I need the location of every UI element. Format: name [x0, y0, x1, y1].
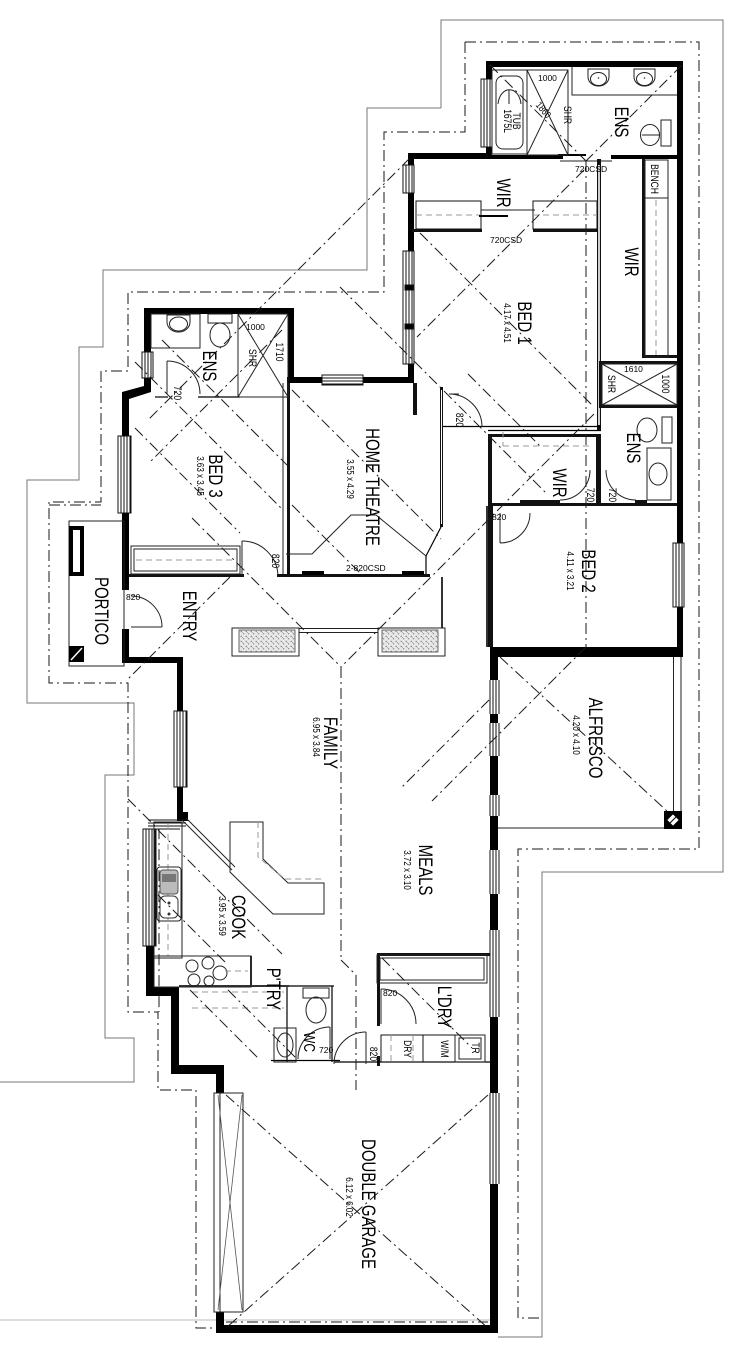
svg-text:820: 820: [453, 413, 465, 428]
svg-text:BED 3: BED 3: [205, 454, 227, 497]
svg-text:HOME THEATRE: HOME THEATRE: [362, 428, 384, 546]
svg-text:820: 820: [492, 512, 506, 522]
svg-text:820: 820: [367, 1047, 379, 1062]
svg-text:1710: 1710: [273, 343, 285, 362]
svg-text:4.11 x 3.21: 4.11 x 3.21: [565, 552, 576, 591]
svg-text:3.95 x 3.59: 3.95 x 3.59: [217, 896, 228, 936]
svg-text:3.63 x 3.45: 3.63 x 3.45: [195, 456, 206, 496]
svg-text:1000: 1000: [659, 375, 671, 394]
svg-text:6.95 x 3.84: 6.95 x 3.84: [311, 717, 322, 757]
svg-text:ENS: ENS: [623, 433, 645, 464]
svg-text:WIR: WIR: [621, 247, 643, 276]
svg-text:WIR: WIR: [493, 178, 515, 207]
svg-text:WC: WC: [301, 1032, 319, 1052]
svg-text:ENS: ENS: [199, 351, 221, 382]
svg-text:P'TRY: P'TRY: [263, 968, 285, 1011]
svg-text:820: 820: [126, 592, 140, 602]
svg-text:BENCH: BENCH: [648, 164, 660, 194]
svg-text:720: 720: [171, 386, 183, 401]
svg-text:4.17 x 4.51: 4.17 x 4.51: [502, 303, 513, 343]
svg-text:MEALS: MEALS: [415, 845, 437, 896]
svg-text:TR: TR: [469, 1042, 481, 1053]
svg-text:720: 720: [606, 488, 618, 503]
svg-text:L'DRY: L'DRY: [434, 986, 456, 1029]
svg-text:820: 820: [383, 988, 397, 998]
svg-text:ENS: ENS: [611, 107, 633, 138]
svg-text:820: 820: [269, 554, 281, 569]
svg-text:720: 720: [319, 1045, 333, 1055]
svg-text:1000: 1000: [246, 322, 265, 332]
svg-text:COOK: COOK: [228, 895, 250, 939]
svg-text:TUB: TUB: [510, 113, 522, 130]
svg-text:ENTRY: ENTRY: [179, 591, 201, 642]
svg-text:6.12 x 6.02: 6.12 x 6.02: [344, 1177, 355, 1217]
svg-text:DOUBLE GARAGE: DOUBLE GARAGE: [358, 1139, 380, 1269]
svg-text:DRY: DRY: [401, 1040, 413, 1058]
svg-text:1610: 1610: [624, 364, 643, 374]
svg-text:2-820CSD: 2-820CSD: [346, 563, 386, 573]
svg-text:ALFRESCO: ALFRESCO: [585, 698, 607, 779]
svg-text:720CSD: 720CSD: [575, 164, 607, 174]
svg-text:SHR: SHR: [246, 349, 258, 367]
svg-text:W/M: W/M: [438, 1040, 450, 1057]
svg-text:WIR: WIR: [549, 468, 571, 497]
svg-text:SHR: SHR: [605, 375, 617, 393]
svg-text:720: 720: [584, 488, 596, 503]
svg-text:BED 1: BED 1: [514, 301, 536, 344]
svg-text:FAMILY: FAMILY: [320, 717, 342, 770]
svg-text:3.72 x 3.10: 3.72 x 3.10: [402, 850, 413, 890]
svg-text:PORTICO: PORTICO: [91, 577, 113, 645]
svg-text:SHR: SHR: [561, 106, 573, 124]
svg-text:1000: 1000: [538, 73, 557, 83]
svg-text:3.55 x 4.29: 3.55 x 4.29: [345, 459, 356, 499]
svg-text:720CSD: 720CSD: [490, 235, 522, 245]
svg-text:4.20 x 4.10: 4.20 x 4.10: [571, 715, 582, 755]
svg-text:BED 2: BED 2: [578, 549, 600, 592]
